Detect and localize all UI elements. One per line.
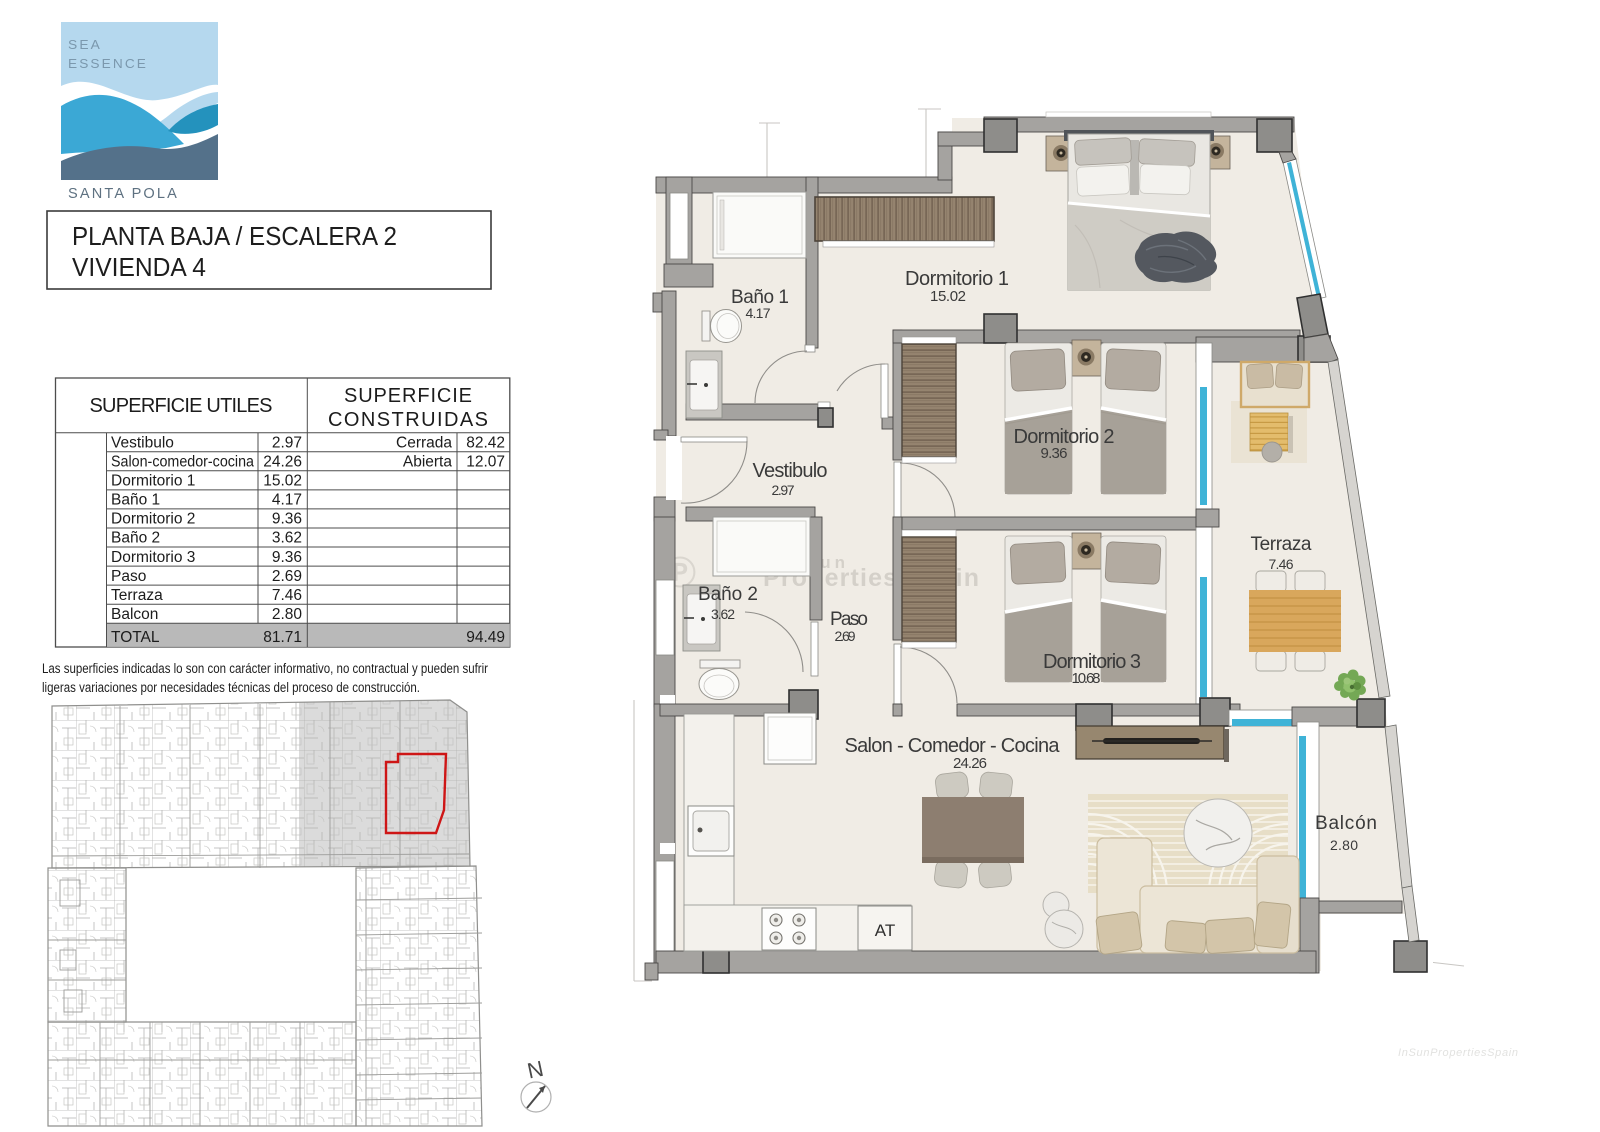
svg-text:3.62: 3.62 [711, 606, 735, 622]
svg-text:9.36: 9.36 [272, 511, 302, 528]
svg-text:4.17: 4.17 [746, 305, 771, 321]
svg-text:10.68: 10.68 [1072, 670, 1101, 687]
svg-text:2.69: 2.69 [835, 628, 856, 644]
svg-text:Vestibulo: Vestibulo [111, 435, 174, 452]
svg-text:15.02: 15.02 [930, 288, 966, 305]
svg-text:PLANTA BAJA / ESCALERA 2: PLANTA BAJA / ESCALERA 2 [72, 221, 397, 251]
svg-text:4.17: 4.17 [272, 492, 302, 509]
svg-text:2.69: 2.69 [272, 568, 302, 585]
svg-text:7.46: 7.46 [1269, 556, 1294, 572]
svg-text:Terraza: Terraza [111, 587, 163, 604]
svg-text:Dormitorio 3: Dormitorio 3 [111, 549, 195, 566]
svg-text:9.36: 9.36 [272, 549, 302, 566]
svg-text:Las superficies indicadas lo s: Las superficies indicadas lo son con car… [42, 661, 488, 677]
svg-text:2.80: 2.80 [1330, 837, 1358, 853]
svg-text:Dormitorio 1: Dormitorio 1 [905, 268, 1009, 290]
svg-text:Dormitorio 2: Dormitorio 2 [111, 511, 195, 528]
svg-text:Abierta: Abierta [403, 454, 452, 471]
svg-text:AT: AT [875, 921, 895, 940]
svg-text:94.49: 94.49 [466, 629, 505, 646]
svg-text:3.62: 3.62 [272, 530, 302, 547]
svg-text:VIVIENDA 4: VIVIENDA 4 [72, 252, 206, 282]
svg-text:ligeras variaciones por necesi: ligeras variaciones por necesidades técn… [42, 680, 420, 696]
svg-text:12.07: 12.07 [466, 454, 505, 471]
svg-text:2.97: 2.97 [772, 482, 795, 498]
svg-text:InSunPropertiesSpain: InSunPropertiesSpain [1398, 1047, 1518, 1059]
svg-text:81.71: 81.71 [263, 629, 302, 646]
svg-text:CONSTRUIDAS: CONSTRUIDAS [328, 409, 488, 431]
svg-text:Terraza: Terraza [1251, 534, 1312, 555]
svg-text:SANTA POLA: SANTA POLA [68, 185, 179, 202]
svg-text:SUPERFICIE: SUPERFICIE [344, 385, 472, 407]
svg-text:7.46: 7.46 [272, 587, 302, 604]
svg-text:TOTAL: TOTAL [111, 629, 160, 646]
svg-text:Salon - Comedor - Cocina: Salon - Comedor - Cocina [845, 735, 1061, 757]
svg-text:ESSENCE: ESSENCE [68, 56, 148, 71]
svg-text:Paso: Paso [830, 609, 868, 630]
svg-text:24.26: 24.26 [953, 755, 987, 772]
svg-text:Baño 1: Baño 1 [111, 492, 160, 509]
svg-text:Baño 2: Baño 2 [111, 530, 160, 547]
svg-text:Baño 2: Baño 2 [698, 584, 758, 605]
svg-text:Paso: Paso [111, 568, 146, 585]
svg-text:SUPERFICIE UTILES: SUPERFICIE UTILES [90, 395, 273, 417]
svg-text:2.80: 2.80 [272, 606, 303, 623]
svg-text:15.02: 15.02 [263, 473, 302, 490]
svg-text:Balcón: Balcón [1315, 813, 1377, 834]
svg-text:Salon-comedor-cocina: Salon-comedor-cocina [111, 454, 254, 471]
svg-text:2.97: 2.97 [272, 435, 302, 452]
svg-text:Dormitorio 1: Dormitorio 1 [111, 473, 195, 490]
svg-text:9.36: 9.36 [1041, 445, 1068, 462]
svg-text:Vestibulo: Vestibulo [753, 460, 828, 482]
svg-text:Cerrada: Cerrada [396, 435, 452, 452]
svg-text:82.42: 82.42 [466, 435, 505, 452]
svg-text:24.26: 24.26 [263, 454, 302, 471]
svg-text:SEA: SEA [68, 37, 102, 52]
svg-text:Balcon: Balcon [111, 606, 158, 623]
